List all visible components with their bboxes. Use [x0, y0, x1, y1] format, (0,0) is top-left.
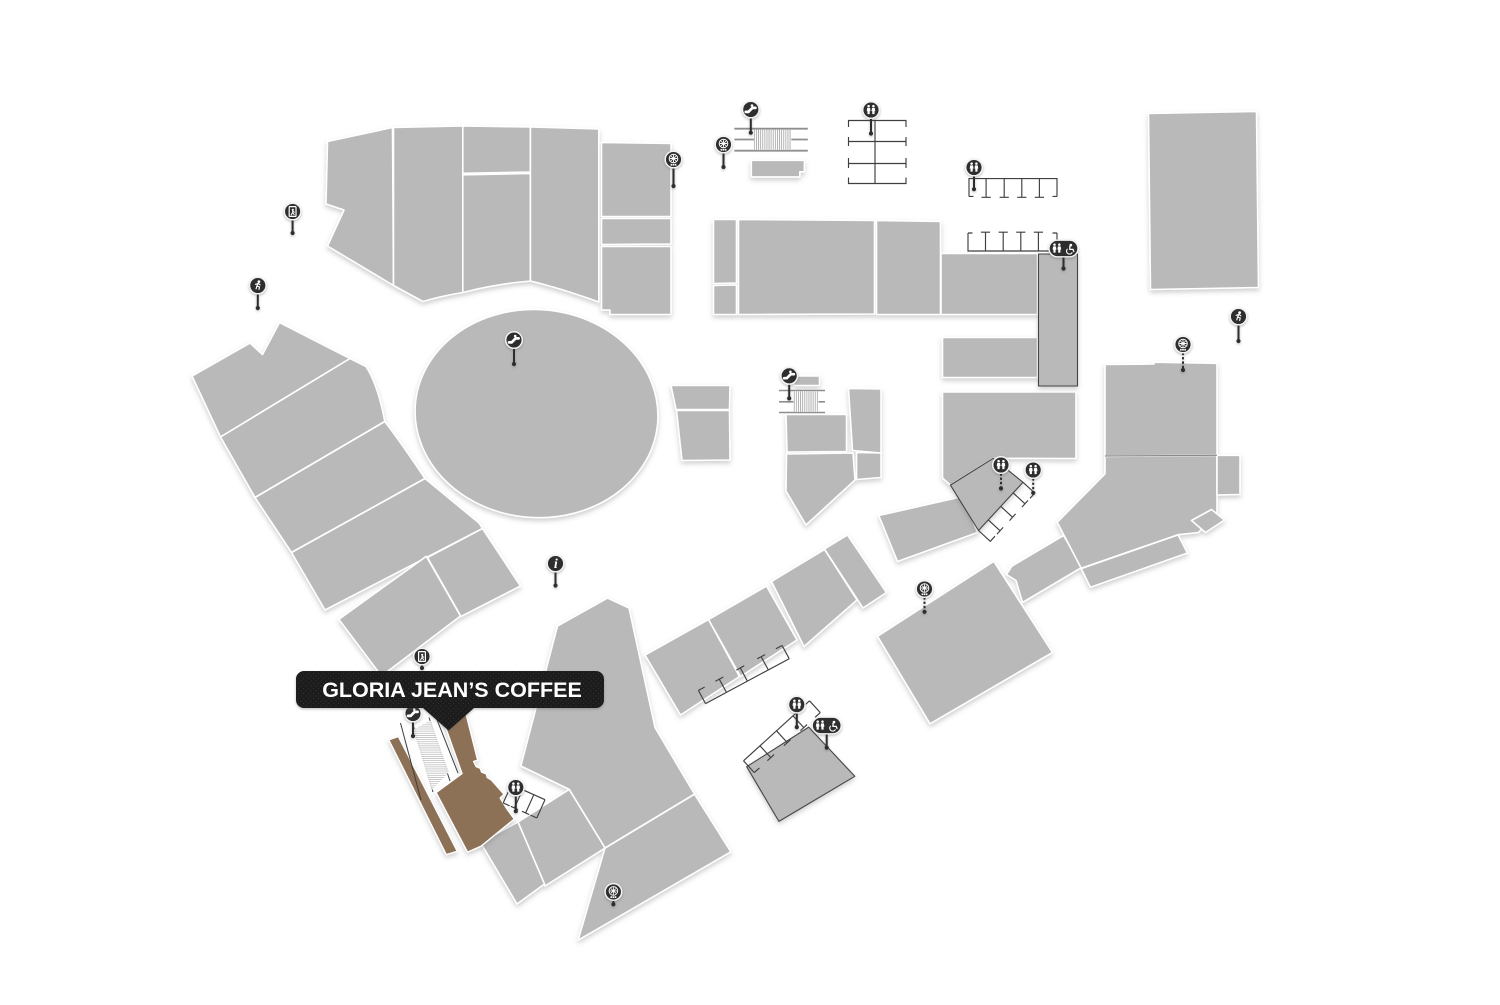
svg-text:i: i	[554, 557, 558, 572]
svg-text:GLORIA JEAN’S COFFEE: GLORIA JEAN’S COFFEE	[322, 678, 582, 702]
